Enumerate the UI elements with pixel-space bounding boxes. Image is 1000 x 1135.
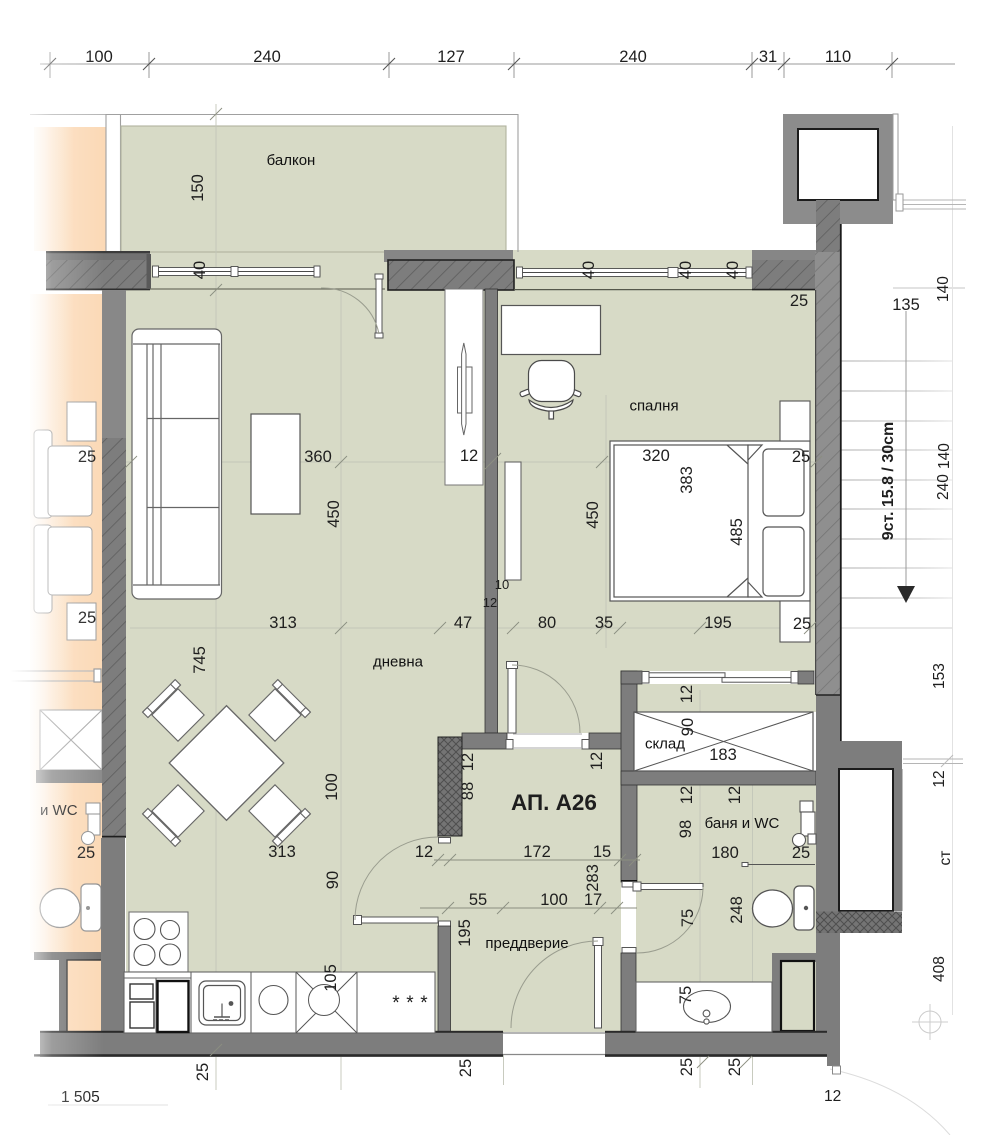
svg-text:баня и WC: баня и WC — [705, 815, 780, 832]
svg-text:*: * — [392, 993, 400, 1014]
svg-text:313: 313 — [269, 614, 297, 632]
svg-text:12: 12 — [415, 843, 433, 861]
svg-text:75: 75 — [679, 909, 697, 927]
svg-text:12: 12 — [678, 786, 696, 804]
svg-text:172: 172 — [523, 843, 551, 861]
svg-text:195: 195 — [456, 919, 474, 947]
svg-text:745: 745 — [191, 646, 209, 674]
svg-text:12: 12 — [931, 770, 948, 787]
svg-text:183: 183 — [709, 746, 737, 764]
svg-text:105: 105 — [322, 964, 340, 992]
svg-text:360: 360 — [304, 448, 332, 466]
svg-text:140: 140 — [936, 443, 953, 469]
svg-text:485: 485 — [728, 518, 746, 546]
svg-text:9ст. 15.8 / 30cm: 9ст. 15.8 / 30cm — [880, 422, 897, 541]
svg-text:98: 98 — [677, 820, 695, 838]
svg-text:90: 90 — [679, 718, 697, 736]
svg-text:80: 80 — [538, 614, 556, 632]
svg-text:313: 313 — [268, 843, 296, 861]
svg-text:17: 17 — [584, 891, 602, 909]
svg-text:15: 15 — [593, 843, 611, 861]
svg-text:75: 75 — [677, 986, 695, 1004]
svg-text:195: 195 — [704, 614, 732, 632]
svg-text:балкон: балкон — [267, 152, 316, 169]
svg-text:450: 450 — [584, 501, 602, 529]
svg-text:55: 55 — [469, 891, 487, 909]
svg-text:88: 88 — [459, 782, 477, 800]
svg-text:283: 283 — [584, 864, 602, 892]
svg-text:12: 12 — [726, 786, 744, 804]
svg-text:дневна: дневна — [373, 654, 424, 671]
svg-text:127: 127 — [437, 48, 465, 66]
svg-text:спалня: спалня — [629, 398, 678, 415]
svg-text:31: 31 — [759, 48, 777, 66]
svg-text:*: * — [406, 993, 414, 1014]
svg-text:12: 12 — [678, 685, 696, 703]
svg-text:40: 40 — [724, 261, 742, 279]
svg-text:47: 47 — [454, 614, 472, 632]
svg-text:320: 320 — [642, 447, 670, 465]
svg-text:408: 408 — [931, 956, 948, 982]
svg-text:10: 10 — [495, 577, 509, 592]
svg-text:25: 25 — [194, 1063, 212, 1081]
svg-text:25: 25 — [792, 448, 810, 466]
svg-text:240: 240 — [935, 474, 952, 500]
svg-text:ст: ст — [937, 851, 954, 866]
svg-text:135: 135 — [892, 296, 920, 314]
svg-text:240: 240 — [253, 48, 281, 66]
svg-text:450: 450 — [325, 500, 343, 528]
svg-text:12: 12 — [460, 447, 478, 465]
svg-text:АП. А26: АП. А26 — [511, 790, 597, 815]
svg-text:25: 25 — [457, 1059, 475, 1077]
svg-text:180: 180 — [711, 844, 739, 862]
svg-text:12: 12 — [483, 595, 497, 610]
svg-text:40: 40 — [677, 261, 695, 279]
svg-text:преддверие: преддверие — [485, 935, 568, 952]
svg-text:25: 25 — [790, 292, 808, 310]
svg-text:240: 240 — [619, 48, 647, 66]
svg-text:25: 25 — [726, 1058, 744, 1076]
svg-text:90: 90 — [324, 871, 342, 889]
svg-text:248: 248 — [728, 896, 746, 924]
svg-text:25: 25 — [678, 1058, 696, 1076]
svg-text:140: 140 — [935, 276, 952, 302]
svg-text:383: 383 — [678, 466, 696, 494]
svg-text:40: 40 — [580, 261, 598, 279]
svg-text:40: 40 — [191, 261, 209, 279]
svg-text:25: 25 — [792, 844, 810, 862]
svg-text:35: 35 — [595, 614, 613, 632]
svg-text:153: 153 — [931, 663, 948, 689]
svg-text:склад: склад — [645, 736, 685, 753]
svg-text:*: * — [420, 993, 428, 1014]
svg-text:100: 100 — [323, 773, 341, 801]
svg-text:12: 12 — [588, 752, 606, 770]
svg-text:100: 100 — [540, 891, 568, 909]
svg-text:12: 12 — [459, 753, 477, 771]
svg-text:12: 12 — [824, 1088, 841, 1105]
svg-text:150: 150 — [189, 174, 207, 202]
svg-text:25: 25 — [793, 615, 811, 633]
svg-text:110: 110 — [825, 48, 851, 66]
